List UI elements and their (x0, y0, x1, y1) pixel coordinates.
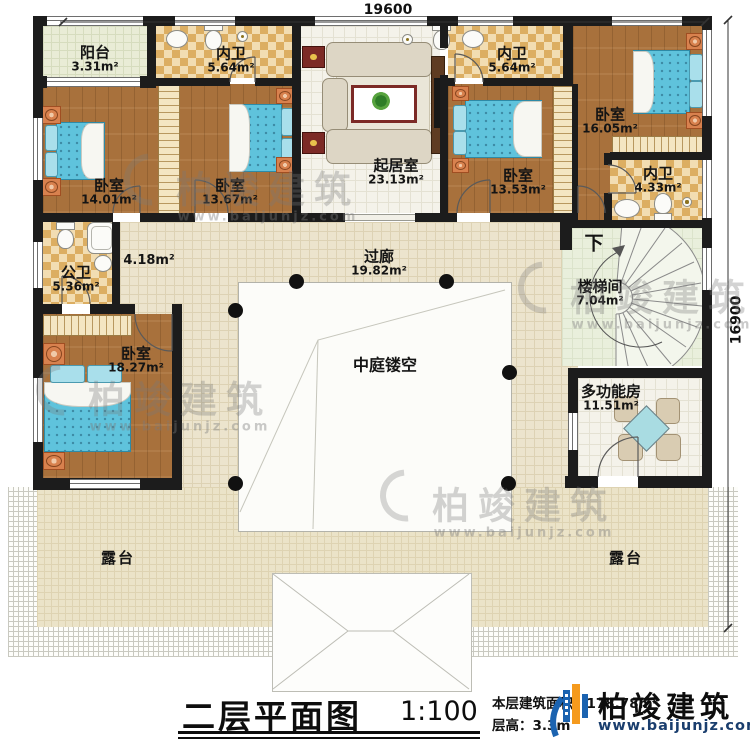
wall (440, 16, 448, 48)
atrium-void (238, 282, 512, 532)
room-label-bath-top-left: 内卫 5.64m² (207, 45, 254, 74)
room-label-multi-room: 多功能房 11.51m² (581, 383, 641, 412)
window (458, 16, 513, 26)
room-label-bedroom-left: 卧室 14.01m² (81, 177, 137, 206)
wall (605, 213, 612, 222)
room-label-bedroom-bl: 卧室 18.27m² (108, 345, 164, 374)
room-label-bath-right: 内卫 4.33m² (634, 165, 681, 194)
column (502, 365, 517, 380)
nightstand (452, 158, 469, 173)
floor-plan: 阳台 3.31m² 内卫 5.64m² 内卫 5.64m² 起居室 23.13m… (0, 0, 750, 744)
wall (638, 476, 712, 488)
wall (172, 314, 182, 478)
terrace-edge-right (708, 487, 738, 627)
wardrobe (553, 86, 574, 218)
wall (565, 476, 598, 488)
wall (572, 84, 578, 218)
window (702, 160, 712, 218)
brand-logo-icon (546, 680, 590, 740)
toilet-icon (654, 193, 672, 214)
bed-bedroom-bl (44, 364, 131, 452)
wall (292, 16, 301, 222)
wall (560, 220, 712, 228)
window (47, 16, 143, 26)
end-table (302, 46, 325, 68)
plant-icon (372, 92, 390, 110)
column (501, 476, 516, 491)
wall (610, 152, 702, 160)
shower-icon (682, 197, 692, 207)
sink-icon (462, 30, 484, 48)
column (228, 303, 243, 318)
bed-bedroom-left (44, 122, 104, 179)
window (568, 413, 578, 450)
column (439, 274, 454, 289)
window (175, 16, 235, 26)
nightstand (43, 452, 65, 470)
room-label-public-bath: 公卫 5.36m² (52, 264, 99, 293)
shower-icon (237, 31, 248, 42)
dimension-height: 16900 (728, 296, 744, 345)
sink-icon (614, 199, 640, 218)
room-label-living: 起居室 23.13m² (368, 157, 424, 186)
wall (140, 213, 195, 222)
title-underline (178, 737, 480, 739)
room-label-balcony: 阳台 3.31m² (71, 44, 118, 73)
window (33, 378, 43, 442)
window (612, 16, 682, 26)
toilet-icon (57, 229, 74, 249)
wardrobe (158, 84, 180, 218)
wall (33, 213, 113, 222)
column (228, 476, 243, 491)
wall (172, 304, 182, 314)
stair-direction-label: 下 (584, 229, 603, 256)
drawing-scale: 1:100 (400, 696, 478, 727)
wall (568, 368, 705, 378)
sofa-left (322, 78, 348, 132)
wall (448, 78, 455, 86)
nightstand (43, 343, 65, 365)
wall (563, 16, 573, 86)
nightstand (452, 86, 469, 101)
wall (90, 304, 135, 314)
column (289, 274, 304, 289)
end-table (302, 132, 325, 154)
wall (440, 75, 448, 222)
room-label-bedroom-mid1: 卧室 13.67m² (202, 177, 258, 206)
terrace-edge-left (8, 487, 37, 627)
wall (33, 76, 47, 88)
wall (415, 213, 457, 222)
wardrobe (43, 315, 132, 336)
room-label-stairwell: 楼梯间 7.04m² (576, 278, 623, 307)
window (33, 118, 43, 180)
room-label-bath-top-right: 内卫 5.64m² (488, 45, 535, 74)
wall (568, 450, 578, 477)
wall (228, 213, 345, 222)
wall (33, 304, 62, 314)
wall (140, 76, 156, 88)
brand-website: www.baijunjz.com (598, 718, 750, 734)
room-label-atrium: 中庭镂空 (353, 356, 417, 373)
wall (560, 228, 572, 250)
wall (483, 78, 563, 86)
nightstand (42, 106, 61, 124)
bed-bedroom-tr (633, 49, 702, 113)
dimension-width: 19600 (364, 2, 413, 18)
bed-bedroom-mid2 (452, 99, 540, 157)
nightstand (42, 178, 61, 196)
room-label-bedroom-mid2: 卧室 13.53m² (490, 167, 546, 196)
porch-roof (272, 573, 472, 692)
wall (568, 378, 578, 413)
room-label-hallway: 4.18m² (123, 254, 174, 268)
sink-icon (166, 30, 188, 48)
wall (255, 78, 292, 86)
shower-icon (402, 34, 413, 45)
wall (112, 222, 120, 304)
window (702, 30, 712, 116)
window (33, 242, 43, 288)
window (70, 479, 140, 489)
wall (156, 78, 230, 86)
title-underline (178, 731, 480, 734)
room-label-corridor: 过廊 19.82m² (351, 248, 407, 277)
room-label-bedroom-tr: 卧室 16.05m² (582, 106, 638, 135)
window (702, 248, 712, 290)
window (47, 77, 140, 87)
room-label-terrace-left: 露台 (101, 550, 135, 566)
sofa-top (326, 42, 432, 77)
wall (490, 213, 578, 222)
opening-threshold (345, 214, 415, 221)
room-label-terrace-right: 露台 (609, 550, 643, 566)
